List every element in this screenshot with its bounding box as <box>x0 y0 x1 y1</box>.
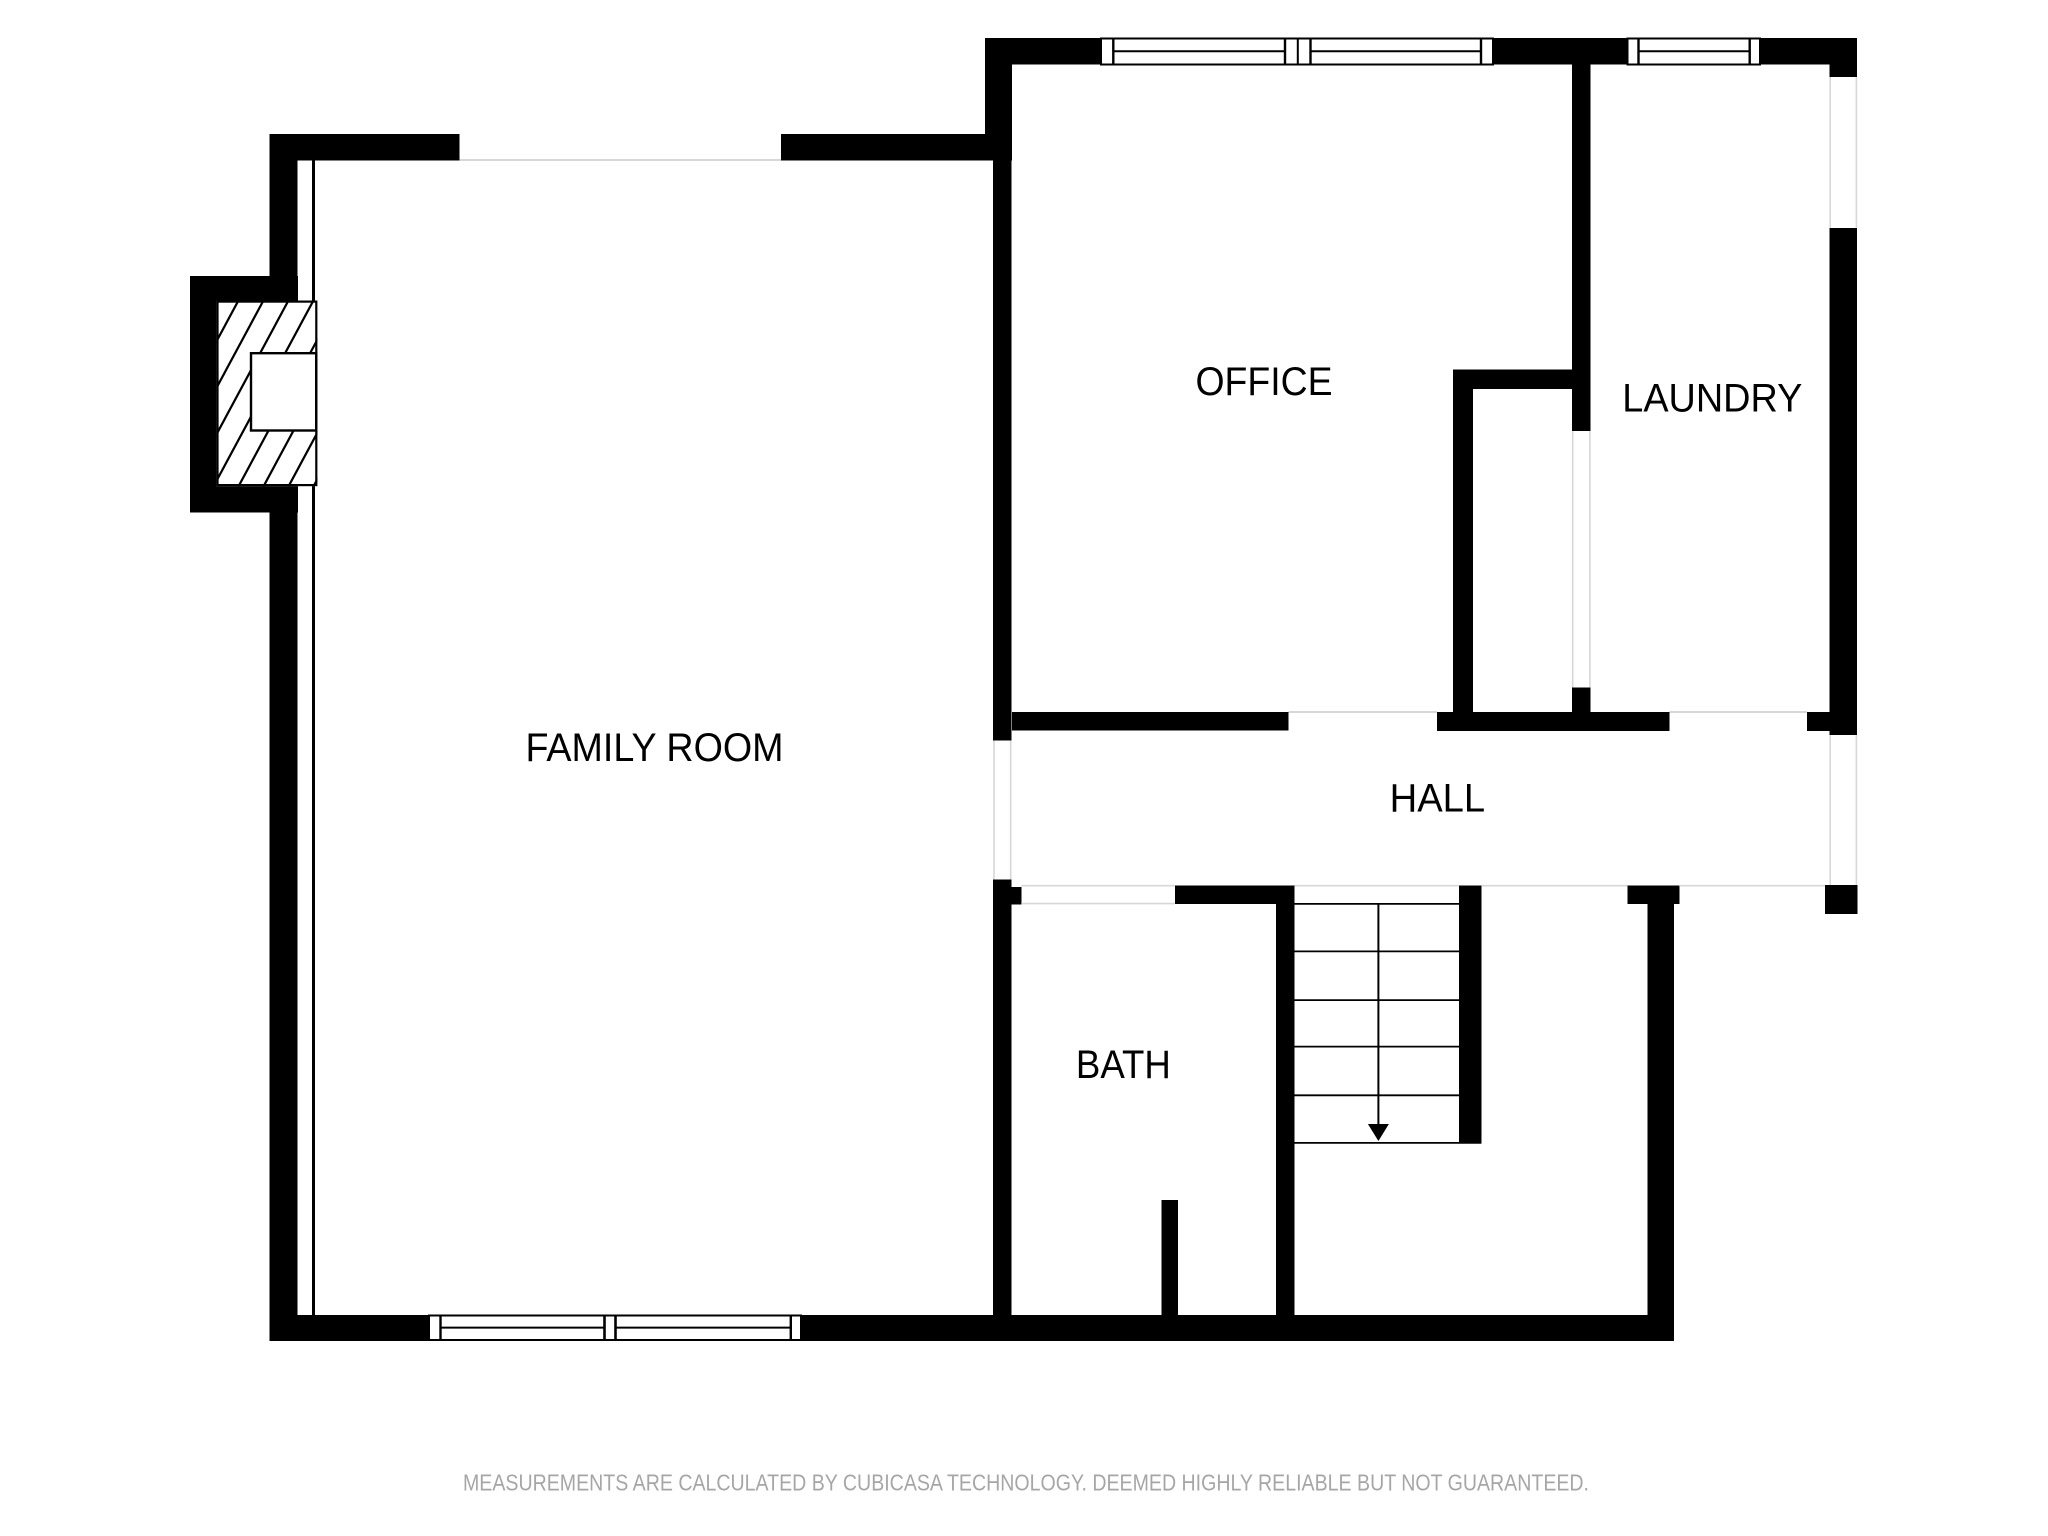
svg-text:BATH: BATH <box>1076 1043 1171 1087</box>
svg-text:OFFICE: OFFICE <box>1196 360 1333 404</box>
svg-text:MEASUREMENTS ARE CALCULATED BY: MEASUREMENTS ARE CALCULATED BY CUBICASA … <box>463 1470 1589 1496</box>
svg-text:HALL: HALL <box>1390 777 1486 821</box>
svg-text:LAUNDRY: LAUNDRY <box>1622 377 1802 421</box>
svg-text:FAMILY ROOM: FAMILY ROOM <box>526 726 784 770</box>
